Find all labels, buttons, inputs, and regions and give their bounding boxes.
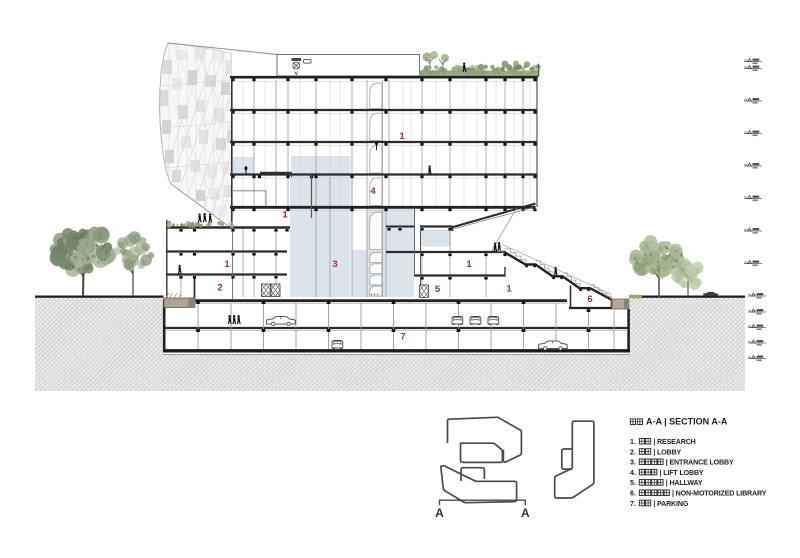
svg-text:2.: 2. bbox=[630, 448, 636, 456]
svg-text:3: 3 bbox=[332, 259, 337, 270]
svg-text:6: 6 bbox=[587, 294, 592, 305]
svg-text:| LIFT LOBBY: | LIFT LOBBY bbox=[660, 469, 704, 477]
svg-text:1: 1 bbox=[506, 284, 512, 295]
svg-text:| HALLWAY: | HALLWAY bbox=[666, 479, 703, 487]
svg-text:4.: 4. bbox=[630, 469, 636, 477]
svg-text:1: 1 bbox=[282, 210, 288, 221]
svg-text:7: 7 bbox=[400, 332, 405, 343]
svg-text:| NON-MOTORIZED LIBRARY: | NON-MOTORIZED LIBRARY bbox=[672, 490, 767, 498]
svg-text:| ENTRANCE LOBBY: | ENTRANCE LOBBY bbox=[666, 459, 734, 467]
svg-text:1: 1 bbox=[466, 259, 472, 270]
svg-text:2: 2 bbox=[217, 283, 222, 294]
svg-text:1: 1 bbox=[224, 259, 230, 270]
svg-text:1: 1 bbox=[399, 131, 405, 142]
svg-text:| RESEARCH: | RESEARCH bbox=[653, 438, 695, 446]
svg-text:1.: 1. bbox=[630, 438, 636, 446]
svg-text:A: A bbox=[435, 506, 444, 520]
svg-text:6.: 6. bbox=[630, 490, 636, 498]
svg-text:7.: 7. bbox=[630, 500, 636, 508]
svg-text:| PARKING: | PARKING bbox=[653, 500, 688, 508]
svg-text:3.: 3. bbox=[630, 459, 636, 467]
svg-text:A: A bbox=[521, 506, 530, 520]
svg-text:5.: 5. bbox=[630, 479, 636, 487]
svg-text:5: 5 bbox=[435, 284, 441, 295]
svg-text:4: 4 bbox=[370, 186, 376, 197]
svg-text:A-A | SECTION A-A: A-A | SECTION A-A bbox=[646, 417, 728, 427]
svg-text:| LOBBY: | LOBBY bbox=[653, 448, 681, 456]
